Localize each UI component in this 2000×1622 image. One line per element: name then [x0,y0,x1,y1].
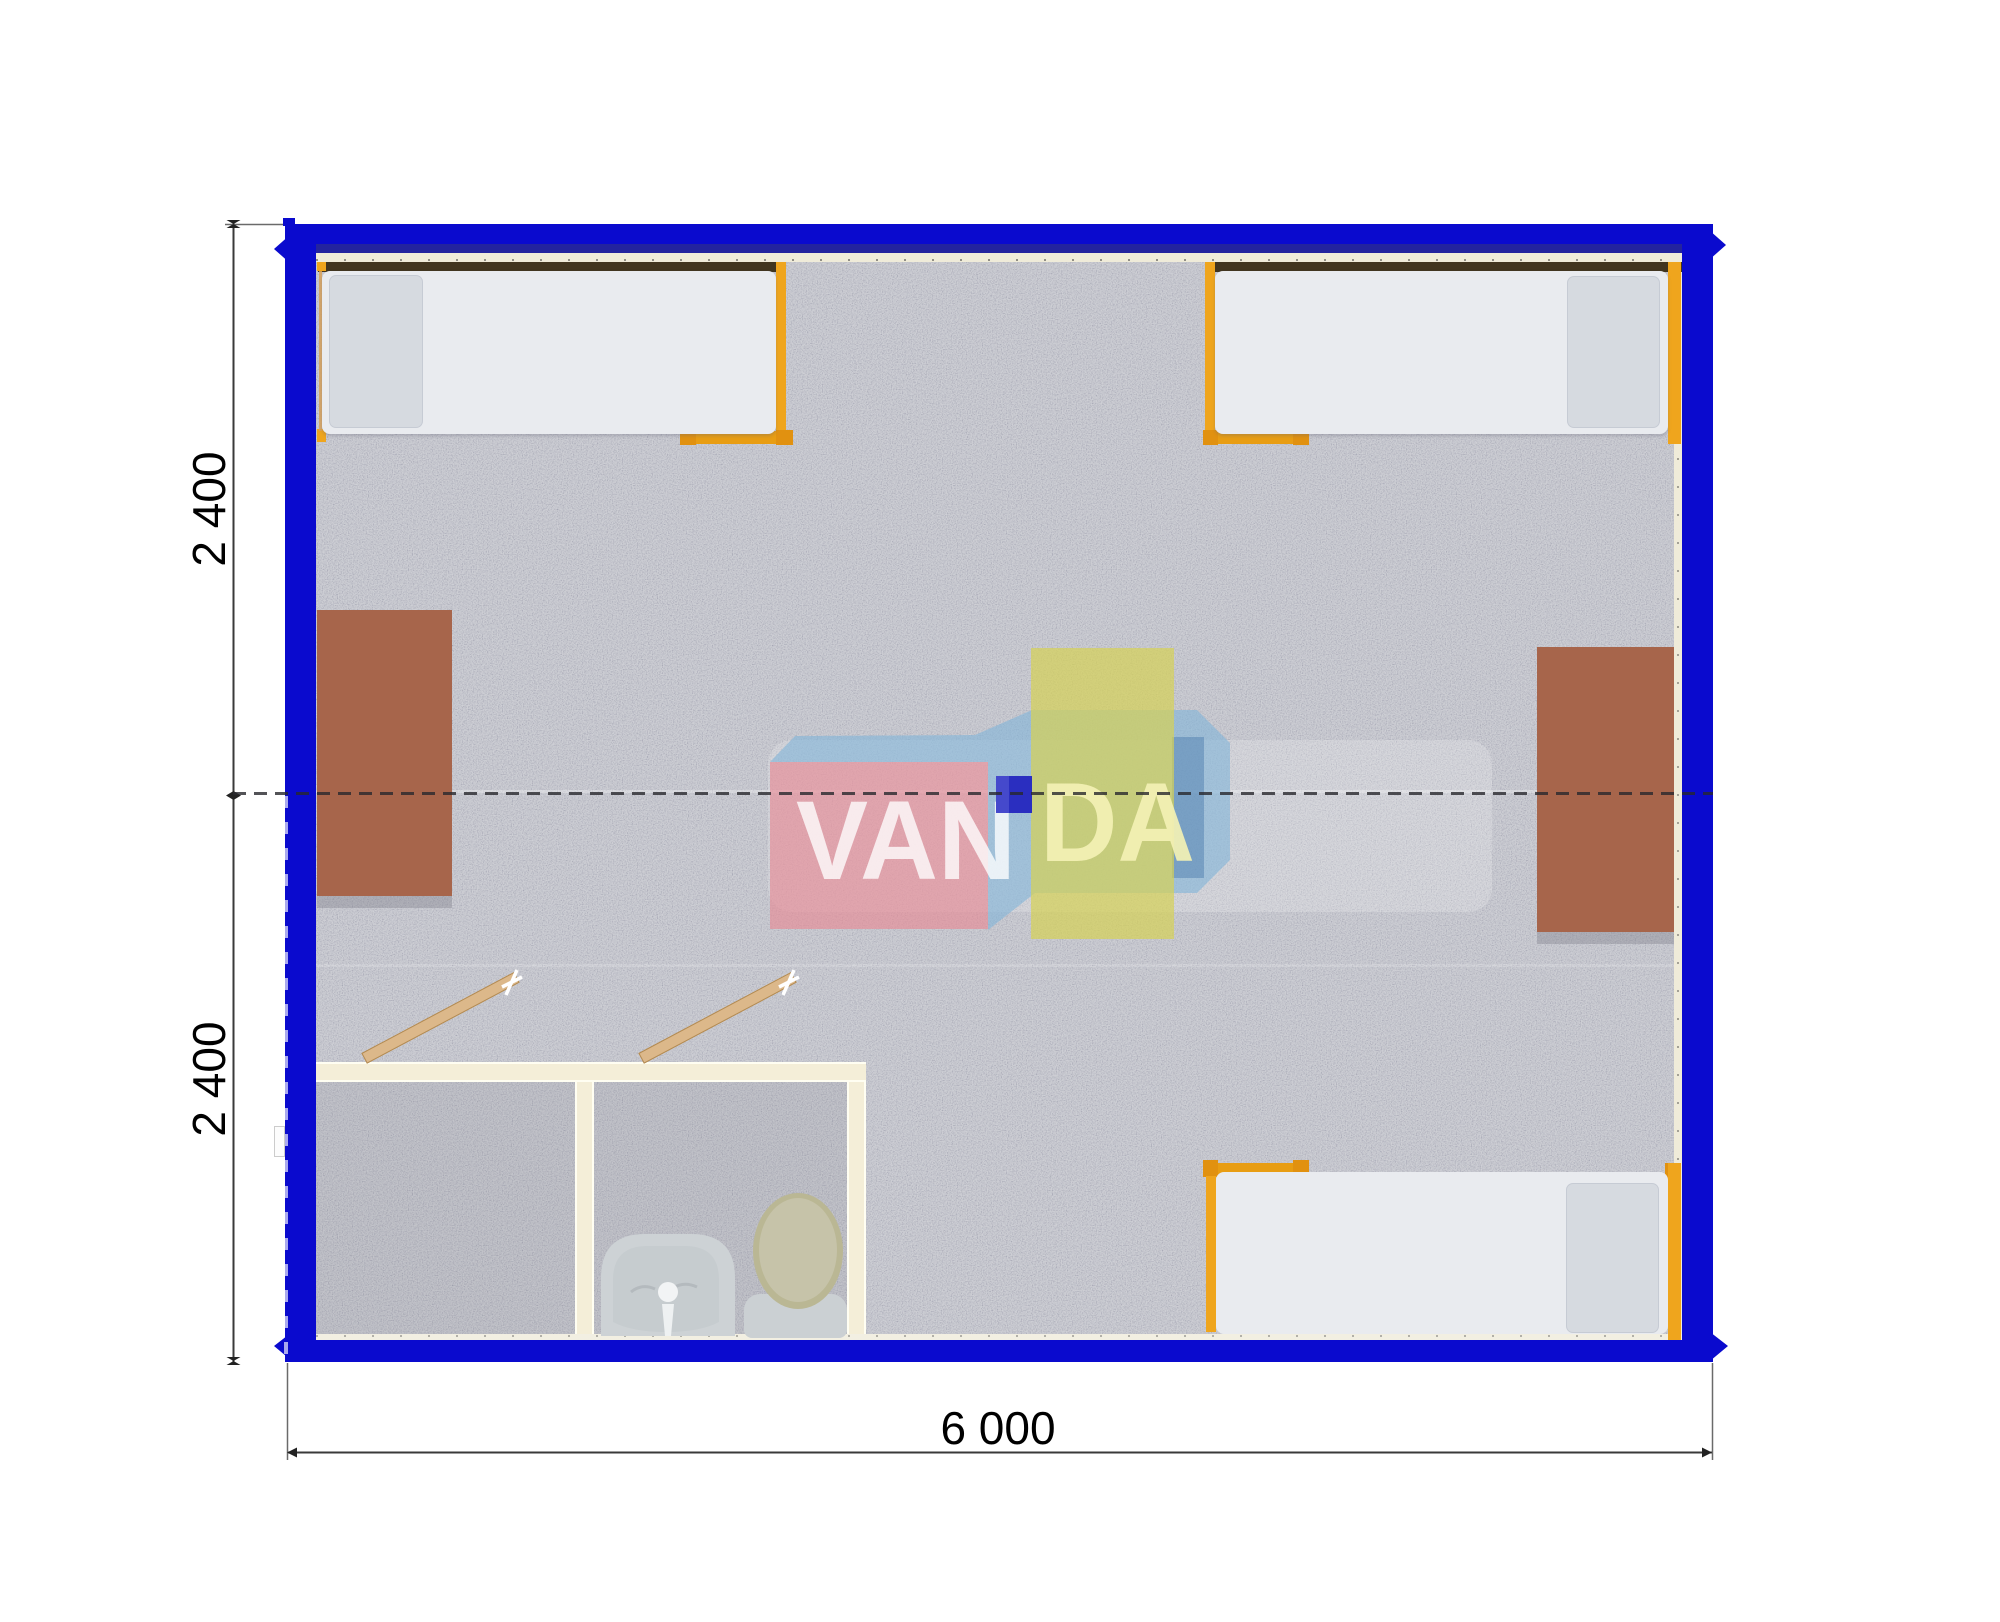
svg-text:DA: DA [1040,760,1195,885]
svg-text:VAN: VAN [796,778,1016,903]
